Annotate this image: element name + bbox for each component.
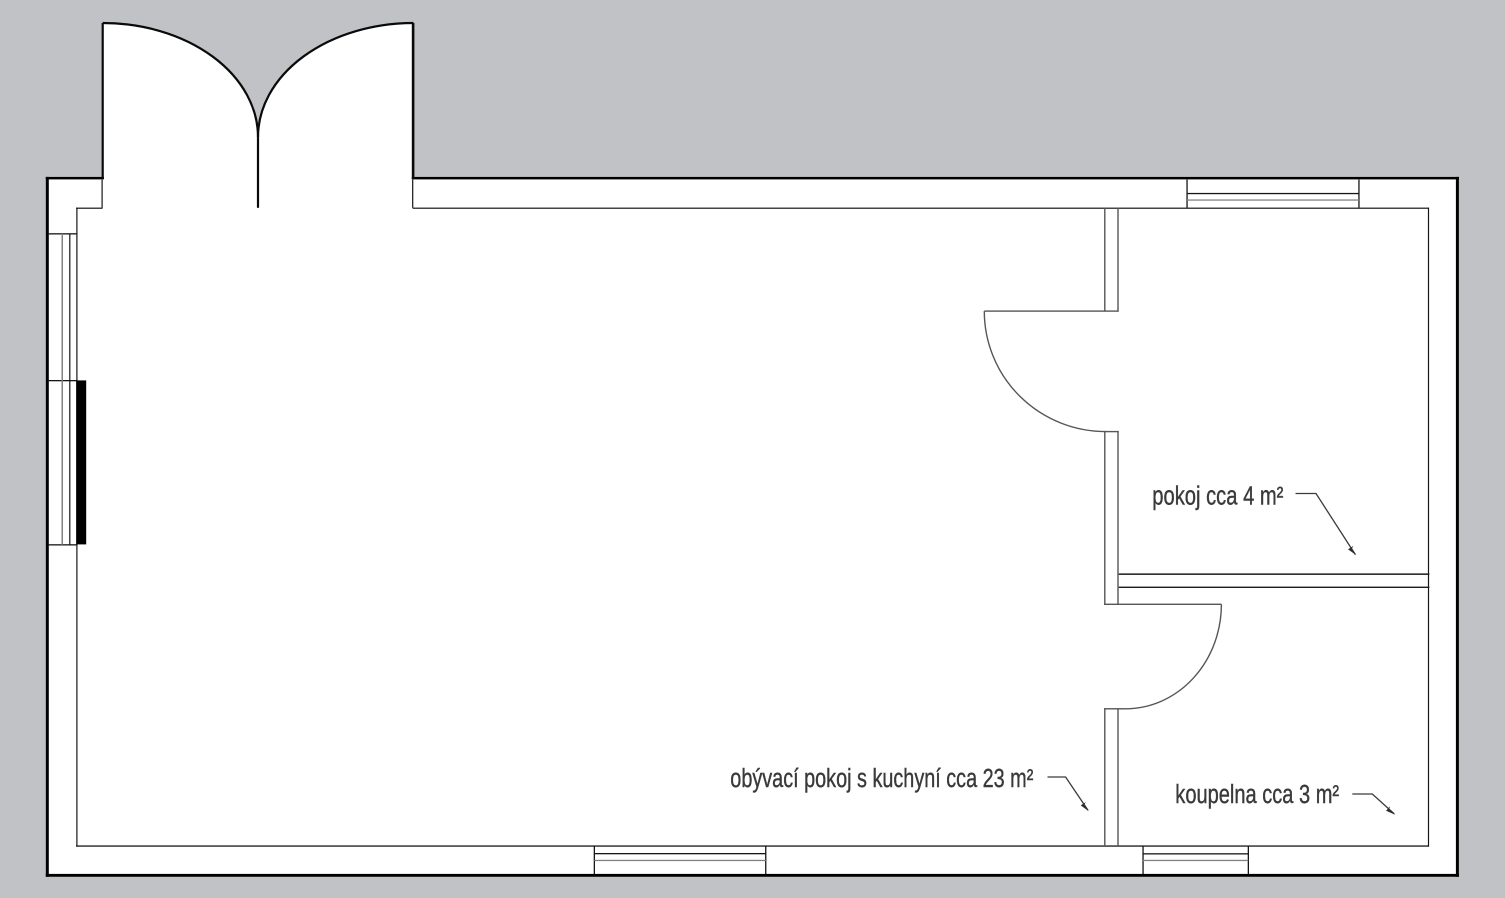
svg-text:obývací pokoj s kuchyní cca 23: obývací pokoj s kuchyní cca 23 m² [730, 763, 1033, 792]
svg-text:koupelna cca 3 m²: koupelna cca 3 m² [1175, 779, 1339, 808]
svg-text:pokoj cca 4 m²: pokoj cca 4 m² [1152, 481, 1283, 510]
